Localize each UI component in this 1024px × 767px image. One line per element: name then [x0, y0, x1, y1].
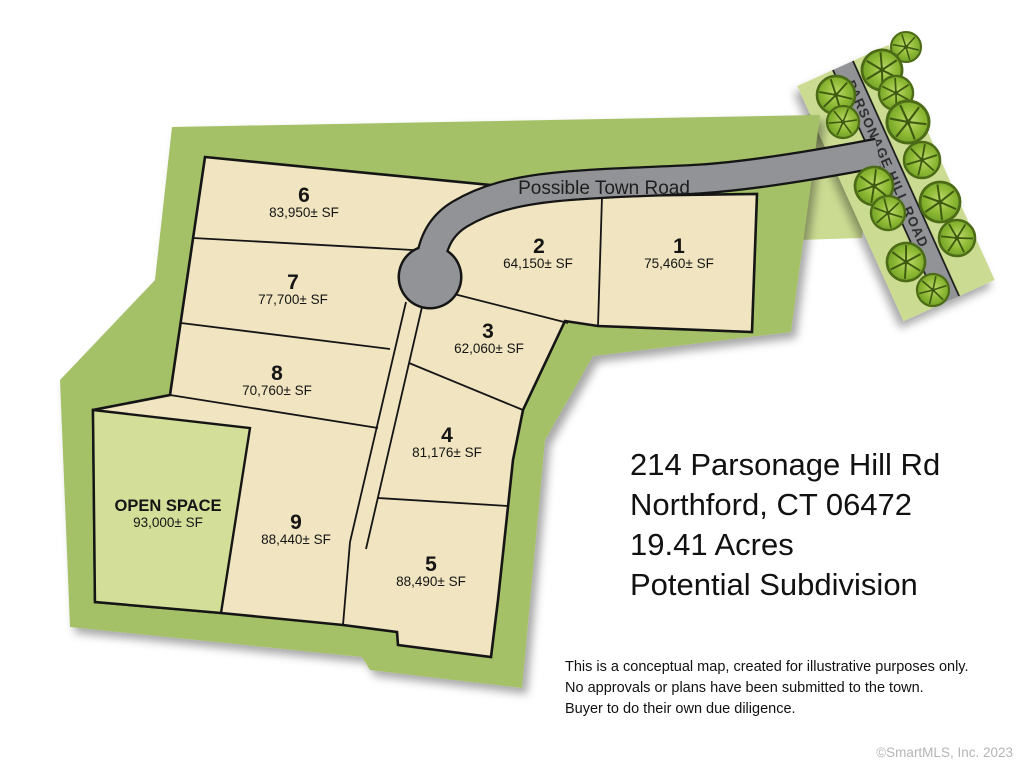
lot-area-label: 81,176± SF: [412, 445, 482, 460]
lot-area-label: 64,150± SF: [503, 256, 573, 271]
lot-number-label: 4: [441, 424, 453, 447]
disclaimer-line: No approvals or plans have been submitte…: [565, 680, 924, 696]
property-address-line: 214 Parsonage Hill Rd: [630, 447, 940, 482]
lot-number-label: 6: [298, 184, 310, 207]
tree-icon: [904, 142, 940, 178]
town-road-label: Possible Town Road: [518, 178, 690, 199]
copyright-watermark: ©SmartMLS, Inc. 2023: [876, 745, 1013, 760]
lot-number-label: 2: [533, 235, 545, 258]
lot-area-label: 88,440± SF: [261, 532, 331, 547]
lot-area-label: 70,760± SF: [242, 383, 312, 398]
lot-area-label: 75,460± SF: [644, 256, 714, 271]
disclaimer-line: Buyer to do their own due diligence.: [565, 701, 796, 717]
open-space-label: OPEN SPACE: [115, 497, 222, 515]
lot-area-label: 77,700± SF: [258, 292, 328, 307]
cul-de-sac: [400, 247, 460, 307]
subdivision-map-page: PARSONAGE HILL ROAD Possible Town Road: [0, 0, 1024, 767]
property-info-block: 214 Parsonage Hill Rd Northford, CT 0647…: [630, 447, 940, 602]
lot-area-label: 88,490± SF: [396, 574, 466, 589]
lot-number-label: 9: [290, 511, 302, 534]
property-acreage-line: 19.41 Acres: [630, 527, 794, 562]
lot-area-label: 83,950± SF: [269, 205, 339, 220]
property-type-line: Potential Subdivision: [630, 567, 918, 602]
lot-number-label: 8: [271, 362, 283, 385]
lot-number-label: 7: [287, 271, 299, 294]
property-city-line: Northford, CT 06472: [630, 487, 912, 522]
disclaimer-line: This is a conceptual map, created for il…: [565, 659, 969, 675]
lot-number-label: 5: [425, 553, 437, 576]
subdivision-map: PARSONAGE HILL ROAD Possible Town Road: [0, 0, 1024, 767]
disclaimer-block: This is a conceptual map, created for il…: [565, 659, 969, 717]
lot-number-label: 3: [482, 320, 494, 343]
open-space-area-label: 93,000± SF: [133, 515, 203, 530]
lot-area-label: 62,060± SF: [454, 341, 524, 356]
lot-number-label: 1: [673, 235, 685, 258]
